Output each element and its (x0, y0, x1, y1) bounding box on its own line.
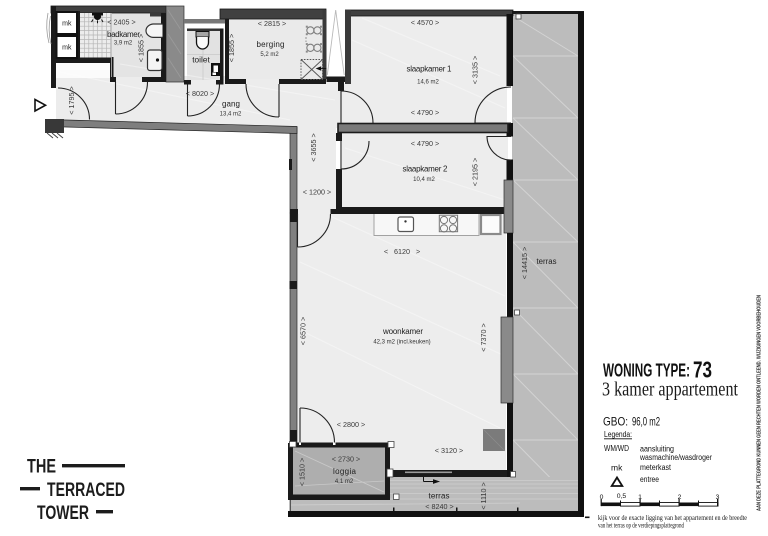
svg-text:TERRACED: TERRACED (47, 480, 125, 501)
svg-text:< 4790 >: < 4790 > (411, 108, 439, 117)
svg-text:< 8020 >: < 8020 > (186, 89, 214, 98)
svg-text:terras: terras (429, 492, 450, 501)
svg-text:< 1510 >: < 1510 > (298, 458, 307, 486)
svg-text:3,9 m2: 3,9 m2 (114, 41, 133, 47)
svg-text:< 6120 >: < 6120 > (384, 247, 420, 256)
svg-text:mk: mk (611, 463, 623, 473)
svg-text:wasmachine/wasdroger: wasmachine/wasdroger (639, 453, 712, 462)
svg-text:< 8240 >: < 8240 > (425, 502, 453, 511)
svg-text:< 1795 >: < 1795 > (67, 86, 76, 114)
svg-text:< 3655 >: < 3655 > (309, 133, 318, 161)
svg-text:meterkast: meterkast (640, 463, 672, 472)
svg-text:badkamer: badkamer (107, 30, 140, 39)
svg-text:< 1855 >: < 1855 > (137, 34, 146, 62)
svg-text:Legenda:: Legenda: (604, 430, 632, 439)
svg-text:slaapkamer 1: slaapkamer 1 (407, 65, 453, 74)
svg-text:entree: entree (640, 475, 659, 484)
svg-text:96,0 m2: 96,0 m2 (632, 415, 660, 429)
svg-text:GBO:: GBO: (603, 415, 628, 429)
svg-text:< 1200 >: < 1200 > (303, 188, 331, 197)
svg-text:woonkamer: woonkamer (382, 327, 423, 336)
svg-text:5,2 m2: 5,2 m2 (260, 52, 279, 58)
svg-text:loggia: loggia (333, 467, 357, 476)
svg-text:terras: terras (537, 257, 557, 266)
svg-text:< 14415 >: < 14415 > (520, 247, 529, 279)
svg-text:< 2800 >: < 2800 > (337, 420, 365, 429)
svg-text:< 6570 >: < 6570 > (299, 317, 308, 345)
svg-text:0,5: 0,5 (617, 493, 627, 500)
svg-text:< 4570 >: < 4570 > (411, 18, 439, 27)
svg-text:< 3120 >: < 3120 > (435, 446, 463, 455)
svg-text:42,3 m2 (incl.keuken): 42,3 m2 (incl.keuken) (373, 340, 430, 346)
svg-text:< 3135 >: < 3135 > (471, 56, 480, 84)
svg-text:mk: mk (62, 45, 72, 52)
svg-text:WM/WD: WM/WD (604, 444, 629, 453)
svg-text:TOWER: TOWER (37, 503, 89, 524)
svg-text:AAN DEZE PLATTEGROND KUNNEN GE: AAN DEZE PLATTEGROND KUNNEN GEEN RECHTEN… (757, 295, 763, 511)
svg-text:< 2815 >: < 2815 > (258, 19, 286, 28)
svg-text:slaapkamer 2: slaapkamer 2 (403, 165, 449, 174)
svg-text:13,4 m2: 13,4 m2 (220, 112, 242, 118)
svg-text:van het terras op de verdiepin: van het terras op de verdiepingsplattegr… (598, 522, 684, 530)
svg-text:< 2195 >: < 2195 > (471, 158, 480, 186)
svg-text:gang: gang (222, 100, 240, 109)
svg-text:< 7370 >: < 7370 > (479, 323, 488, 351)
svg-text:< 1855 >: < 1855 > (227, 34, 236, 62)
svg-text:< 2730 >: < 2730 > (332, 455, 360, 464)
svg-text:WONING TYPE:: WONING TYPE: (603, 361, 690, 381)
svg-text:mk: mk (62, 21, 72, 28)
svg-text:toilet: toilet (192, 56, 210, 65)
svg-text:< 4790 >: < 4790 > (411, 139, 439, 148)
svg-text:THE: THE (27, 457, 56, 478)
svg-text:3 kamer appartement: 3 kamer appartement (602, 379, 738, 401)
svg-text:14,6 m2: 14,6 m2 (417, 80, 439, 86)
svg-text:4,1 m2: 4,1 m2 (335, 479, 354, 485)
svg-text:< 2405 >: < 2405 > (107, 18, 135, 27)
svg-text:< 1110 >: < 1110 > (479, 482, 488, 509)
svg-text:10,4 m2: 10,4 m2 (413, 177, 435, 183)
svg-text:berging: berging (257, 40, 285, 49)
